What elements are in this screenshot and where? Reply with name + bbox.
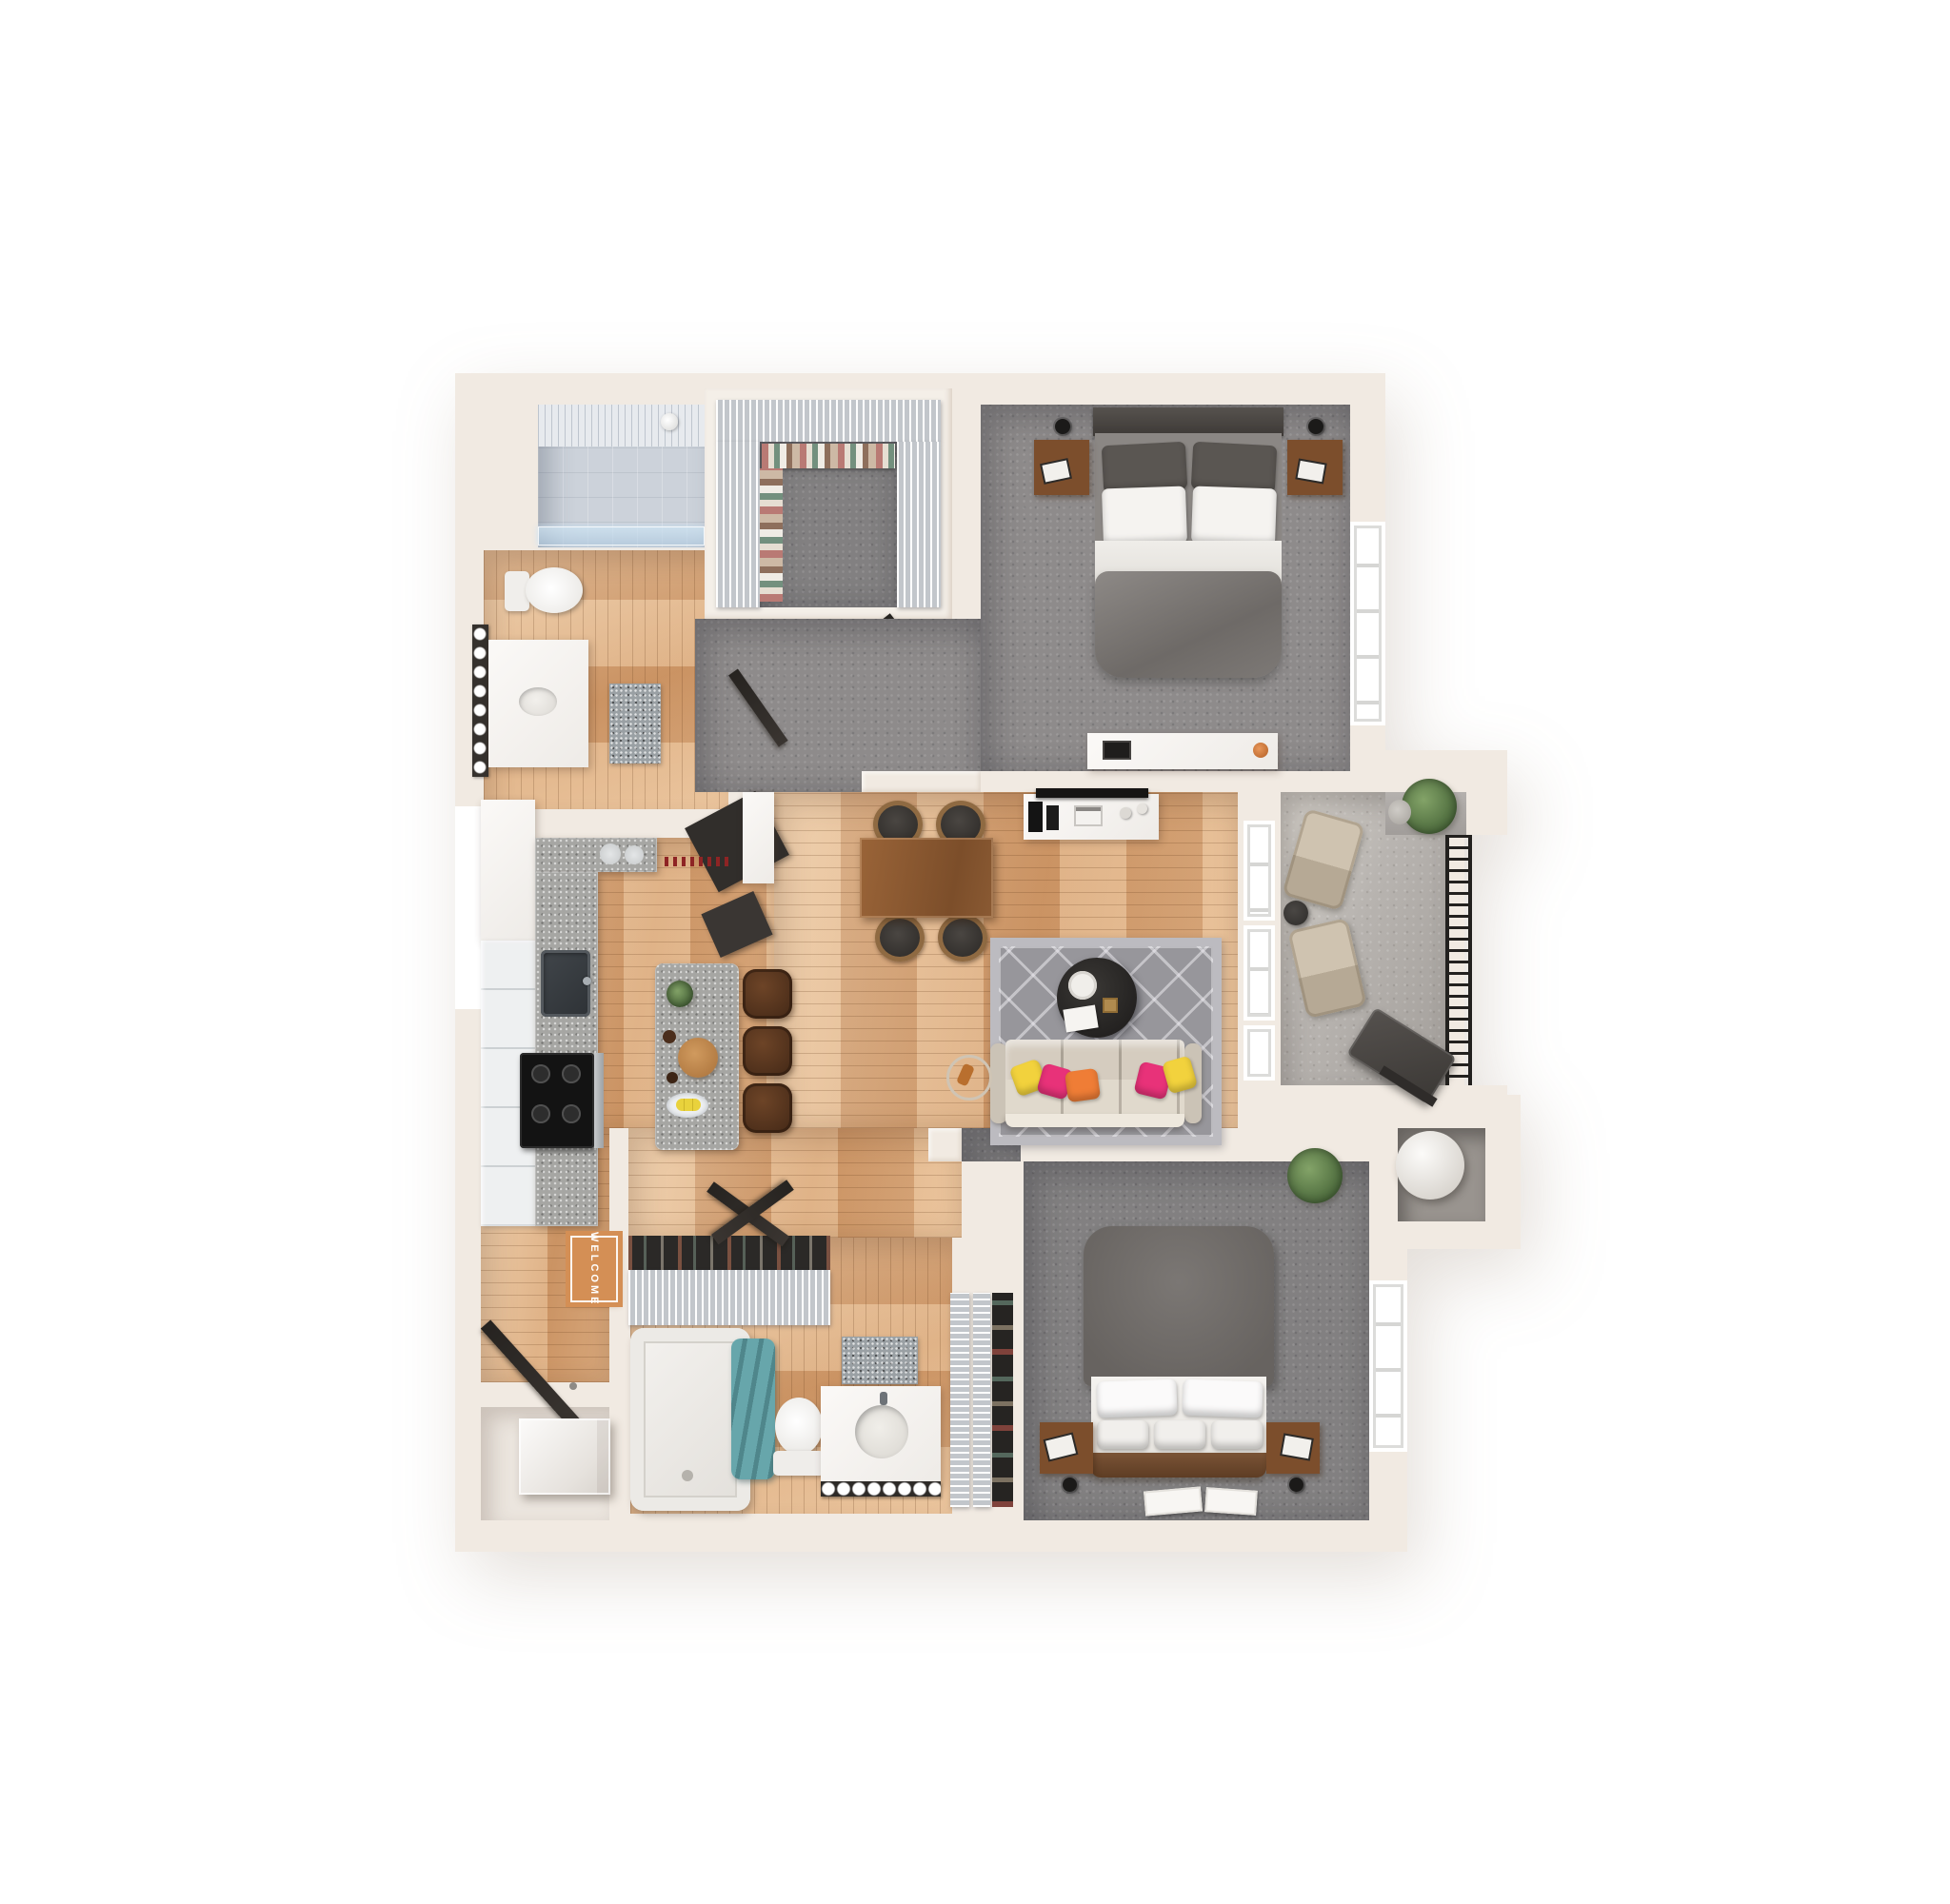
pantry-cabinet	[481, 800, 535, 941]
bath-rug	[609, 684, 661, 764]
oven-steel-edge	[594, 1053, 604, 1148]
bed2-pillow-small-1	[1097, 1420, 1148, 1449]
bed2-pillow-left	[1096, 1379, 1177, 1418]
floor-card-left	[1144, 1486, 1203, 1516]
welcome-mat-text: WELCOME	[588, 1232, 600, 1306]
hall-closet-contents	[628, 1236, 830, 1270]
lemons	[676, 1099, 701, 1111]
closet-shelf-right	[897, 442, 941, 607]
bed1-duvet	[1095, 571, 1282, 678]
bedroom2-plant	[1287, 1148, 1343, 1203]
bed2-footboard	[1091, 1453, 1266, 1478]
vestibule-floor	[695, 619, 981, 792]
balcony-railing	[1445, 835, 1472, 1085]
wall-hall-stub	[928, 1128, 962, 1161]
linen-closet-shelf-b	[973, 1293, 990, 1507]
toilet2-bowl	[775, 1398, 823, 1455]
vanity2-mirror-lights	[821, 1481, 941, 1497]
bed2-headboard	[1084, 1226, 1274, 1386]
teal-towels	[731, 1339, 775, 1479]
entry-door-handle-icon	[569, 1382, 577, 1390]
console-mug-2	[1137, 803, 1147, 814]
linen-closet-shelf-a	[950, 1293, 969, 1507]
apartment-plan: WELCOME	[0, 0, 1950, 1904]
balcony-plant-pot	[1388, 800, 1411, 824]
second-bedroom-window	[1369, 1280, 1407, 1452]
vanity2-sink	[855, 1405, 908, 1458]
island-plant	[667, 981, 693, 1007]
shower-glass-panel	[538, 526, 705, 545]
balcony-door-panel	[1244, 1025, 1275, 1081]
primary-bedroom-window	[1350, 522, 1385, 725]
lamp2-right-icon	[1289, 1478, 1303, 1492]
tv-icon	[1036, 788, 1148, 798]
charcuterie-board	[678, 1038, 718, 1078]
bar-stool-1	[743, 969, 792, 1019]
shower-head-icon	[661, 413, 678, 430]
burner-3	[531, 1104, 550, 1123]
counter-plate-1	[600, 843, 621, 864]
dining-table	[860, 838, 993, 918]
lamp2-left-icon	[1063, 1478, 1077, 1492]
island-bowl-1	[663, 1030, 676, 1043]
floor-card-right	[1204, 1487, 1258, 1516]
hanging-clothes-top	[762, 444, 895, 468]
vanity-mirror-lights	[472, 625, 488, 777]
speaker-right	[1046, 805, 1059, 830]
bed2-pillow-small-3	[1211, 1420, 1263, 1449]
dresser-bowl	[1253, 743, 1268, 758]
water-heater	[1396, 1131, 1464, 1200]
washer	[519, 1418, 610, 1495]
welcome-mat: WELCOME	[570, 1236, 618, 1302]
counter-return	[743, 792, 774, 883]
counter-left-run	[535, 872, 598, 1226]
speaker-left	[1028, 802, 1043, 832]
lamp-left-icon	[1055, 419, 1070, 434]
balcony-sliding-door-upper	[1244, 821, 1275, 921]
pillow-orange	[1065, 1068, 1101, 1102]
balcony-sliding-door-lower	[1244, 925, 1275, 1021]
tub-drain-icon	[682, 1470, 693, 1481]
coffee-table-tray	[1068, 971, 1097, 1000]
vanity-sink	[519, 687, 557, 716]
bed2-pillow-small-2	[1154, 1420, 1205, 1449]
dresser-books	[1103, 741, 1131, 760]
hanging-clothes-left	[760, 468, 783, 602]
bath2-rug	[842, 1337, 918, 1384]
bed1-headboard	[1093, 407, 1283, 436]
balcony-side-table	[1283, 901, 1308, 925]
dining-chair-se	[938, 914, 987, 962]
toilet2-tank	[773, 1451, 825, 1476]
wall-vestibule-south	[862, 771, 981, 792]
counter-plate-2	[625, 845, 644, 864]
toilet-bowl	[526, 567, 583, 613]
floor-plan-render: WELCOME	[0, 0, 1950, 1904]
dining-chair-sw	[875, 914, 925, 962]
bed2-pillow-right	[1182, 1379, 1263, 1418]
bar-stool-3	[743, 1083, 792, 1133]
burner-2	[562, 1064, 581, 1083]
closet-shelf-left	[716, 442, 760, 607]
bed1-pillow-white-left	[1102, 486, 1187, 545]
vanity2-faucet-icon	[880, 1392, 887, 1405]
burner-1	[531, 1064, 550, 1083]
range-cooktop	[520, 1053, 594, 1148]
wine-rack	[665, 857, 733, 866]
console-books	[1074, 805, 1103, 826]
exterior-notch	[455, 806, 484, 1009]
shoe-rack-contents	[992, 1293, 1013, 1507]
hall-closet-shelf	[628, 1270, 830, 1325]
sofa-front	[1005, 1114, 1184, 1127]
lamp-right-icon	[1308, 419, 1323, 434]
console-mug-1	[1120, 807, 1131, 819]
coffee-table-box	[1103, 998, 1118, 1013]
bed1-pillow-white-right	[1191, 486, 1277, 545]
sink-faucet-icon	[583, 977, 591, 985]
burner-4	[562, 1104, 581, 1123]
island-bowl-2	[667, 1072, 678, 1083]
closet-shelf-top	[716, 400, 941, 442]
shower-ceiling-grate	[538, 405, 705, 446]
bar-stool-2	[743, 1026, 792, 1076]
